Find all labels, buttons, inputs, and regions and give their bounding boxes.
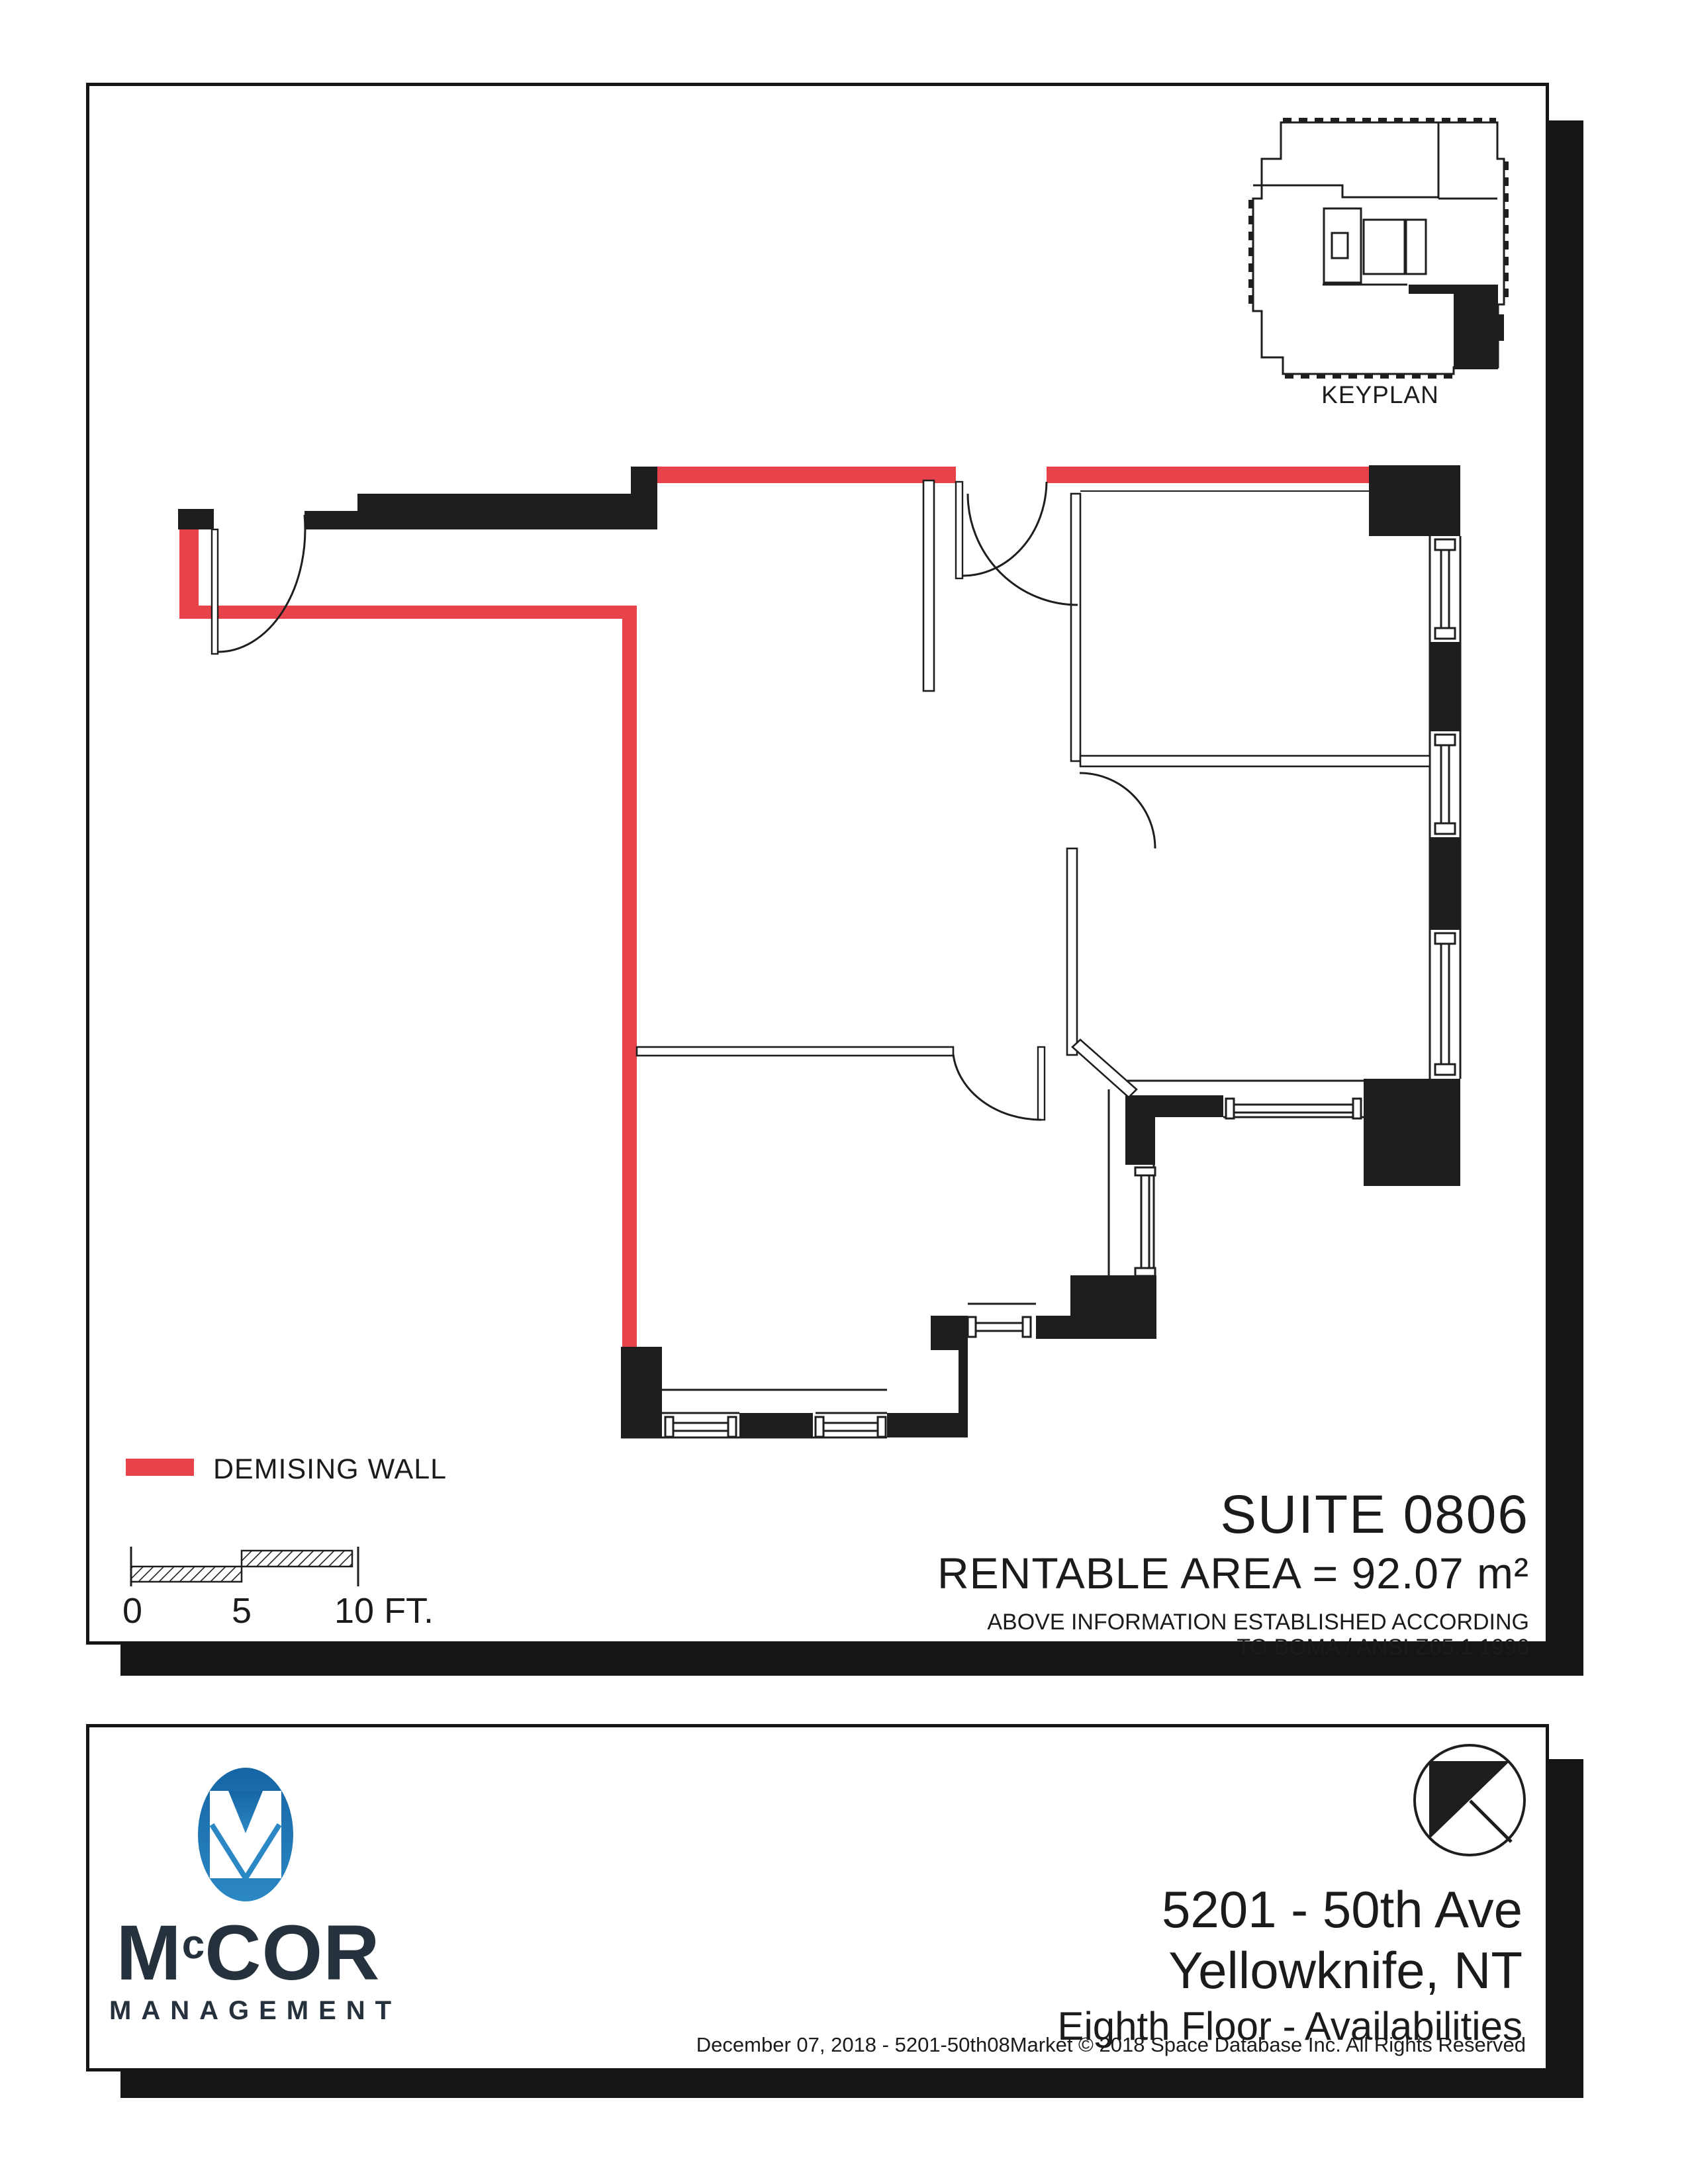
scale-bar bbox=[131, 1547, 358, 1586]
scale-label-10: 10 FT. bbox=[334, 1590, 434, 1631]
partition-bottomroom-top bbox=[637, 1047, 953, 1056]
wall-top-thick bbox=[357, 494, 632, 529]
suite-info: SUITE 0806 RENTABLE AREA = 92.07 m² ABOV… bbox=[801, 1488, 1529, 1660]
floorplan-sheet: { "keyplan": { "label": "KEYPLAN" }, "le… bbox=[0, 0, 1688, 2184]
address-line1: 5201 - 50th Ave bbox=[596, 1884, 1523, 1935]
wall-bottomright-corner-block bbox=[1364, 1079, 1460, 1186]
boma-note-line1: ABOVE INFORMATION ESTABLISHED ACCORDING bbox=[801, 1610, 1529, 1635]
keyplan-graphic bbox=[1250, 120, 1507, 377]
brand-m: M bbox=[117, 1909, 182, 1997]
keyplan-core bbox=[1332, 233, 1348, 258]
brand-name: McCOR bbox=[99, 1914, 397, 1992]
keyplan-label: KEYPLAN bbox=[1314, 381, 1446, 409]
wall-bay-left-block bbox=[621, 1347, 662, 1437]
wall-bay-right-block bbox=[1036, 1275, 1156, 1339]
demising-wall-horizontal bbox=[179, 606, 637, 619]
window-glazing-right-3 bbox=[1435, 933, 1455, 1075]
wall-top-corner bbox=[631, 467, 657, 529]
wall-topright-corner-block bbox=[1369, 465, 1460, 536]
door-entry-topleft bbox=[212, 515, 305, 654]
plan-drawing bbox=[0, 0, 1688, 2184]
keyplan-wall bbox=[1253, 185, 1438, 197]
north-arrow-icon bbox=[1415, 1745, 1524, 1855]
door-room2 bbox=[1080, 773, 1155, 848]
suite-title: SUITE 0806 bbox=[801, 1488, 1529, 1542]
door-room1 bbox=[968, 494, 1078, 605]
doors bbox=[212, 482, 1155, 1120]
keyplan-core bbox=[1324, 208, 1361, 283]
scale-bar-upper bbox=[242, 1551, 352, 1567]
door-demising-1 bbox=[956, 482, 1047, 578]
scale-bar-lower bbox=[131, 1567, 242, 1582]
brand-subtitle: MANAGEMENT bbox=[99, 1997, 397, 2024]
window-glazing-right-2 bbox=[1435, 735, 1455, 834]
suite-rentable-area: RENTABLE AREA = 92.07 m² bbox=[801, 1551, 1529, 1595]
window-glazing-mid bbox=[1226, 1099, 1361, 1118]
window-glazing-vert bbox=[1135, 1167, 1155, 1276]
legend-demising-swatch bbox=[126, 1459, 194, 1476]
brand-rest: COR bbox=[205, 1909, 380, 1997]
scale-label-5: 5 bbox=[227, 1590, 256, 1631]
wall-top-left-stub bbox=[178, 509, 214, 529]
interior-partitions bbox=[637, 480, 1430, 1097]
door-bottomroom bbox=[953, 1047, 1045, 1120]
demising-wall-top-right-segment bbox=[1047, 467, 1369, 483]
keyplan-core bbox=[1406, 220, 1426, 274]
window-glazing-bay-1 bbox=[665, 1417, 736, 1437]
window-mullion-right-2 bbox=[1430, 837, 1460, 930]
wall-notch-corner-block bbox=[1125, 1095, 1223, 1165]
keyplan-suite-highlight bbox=[1409, 285, 1504, 369]
window-glazing-bay-2 bbox=[816, 1417, 886, 1437]
keyplan-core bbox=[1364, 220, 1405, 274]
partition-room1-left bbox=[1071, 494, 1080, 761]
window-mullion-right-1 bbox=[1430, 642, 1460, 731]
window-glazing-bay-upper bbox=[968, 1317, 1031, 1337]
building-address: 5201 - 50th Ave Yellowknife, NT Eighth F… bbox=[596, 1884, 1523, 2046]
copyright-line: December 07, 2018 - 5201-50th08Market © … bbox=[334, 2033, 1526, 2057]
window-pier-bay bbox=[739, 1413, 813, 1437]
brand-small-c: c bbox=[182, 1922, 205, 1968]
demising-wall-main-vertical bbox=[622, 606, 637, 1348]
address-line2: Yellowknife, NT bbox=[596, 1944, 1523, 1996]
demising-wall-left-vertical bbox=[179, 528, 199, 606]
partition-room1-bottom bbox=[1080, 756, 1430, 766]
partition-diagonal bbox=[1072, 1040, 1137, 1097]
scale-label-0: 0 bbox=[118, 1590, 147, 1631]
demising-wall-top-left-segment bbox=[656, 467, 956, 483]
window-glazing-right-1 bbox=[1435, 539, 1455, 639]
legend-demising-label: DEMISING WALL bbox=[213, 1453, 447, 1486]
wall-top-thin bbox=[305, 511, 360, 529]
wall-bay-step-block bbox=[887, 1316, 968, 1437]
partition-spine bbox=[923, 480, 934, 691]
window-walls bbox=[621, 536, 1460, 1437]
partition-room2-left bbox=[1067, 848, 1077, 1055]
mccor-logo bbox=[198, 1768, 293, 1901]
boma-note-line2: TO BOMA / ANSI Z65.1 1996 bbox=[801, 1635, 1529, 1660]
demising-walls bbox=[179, 467, 1369, 1348]
